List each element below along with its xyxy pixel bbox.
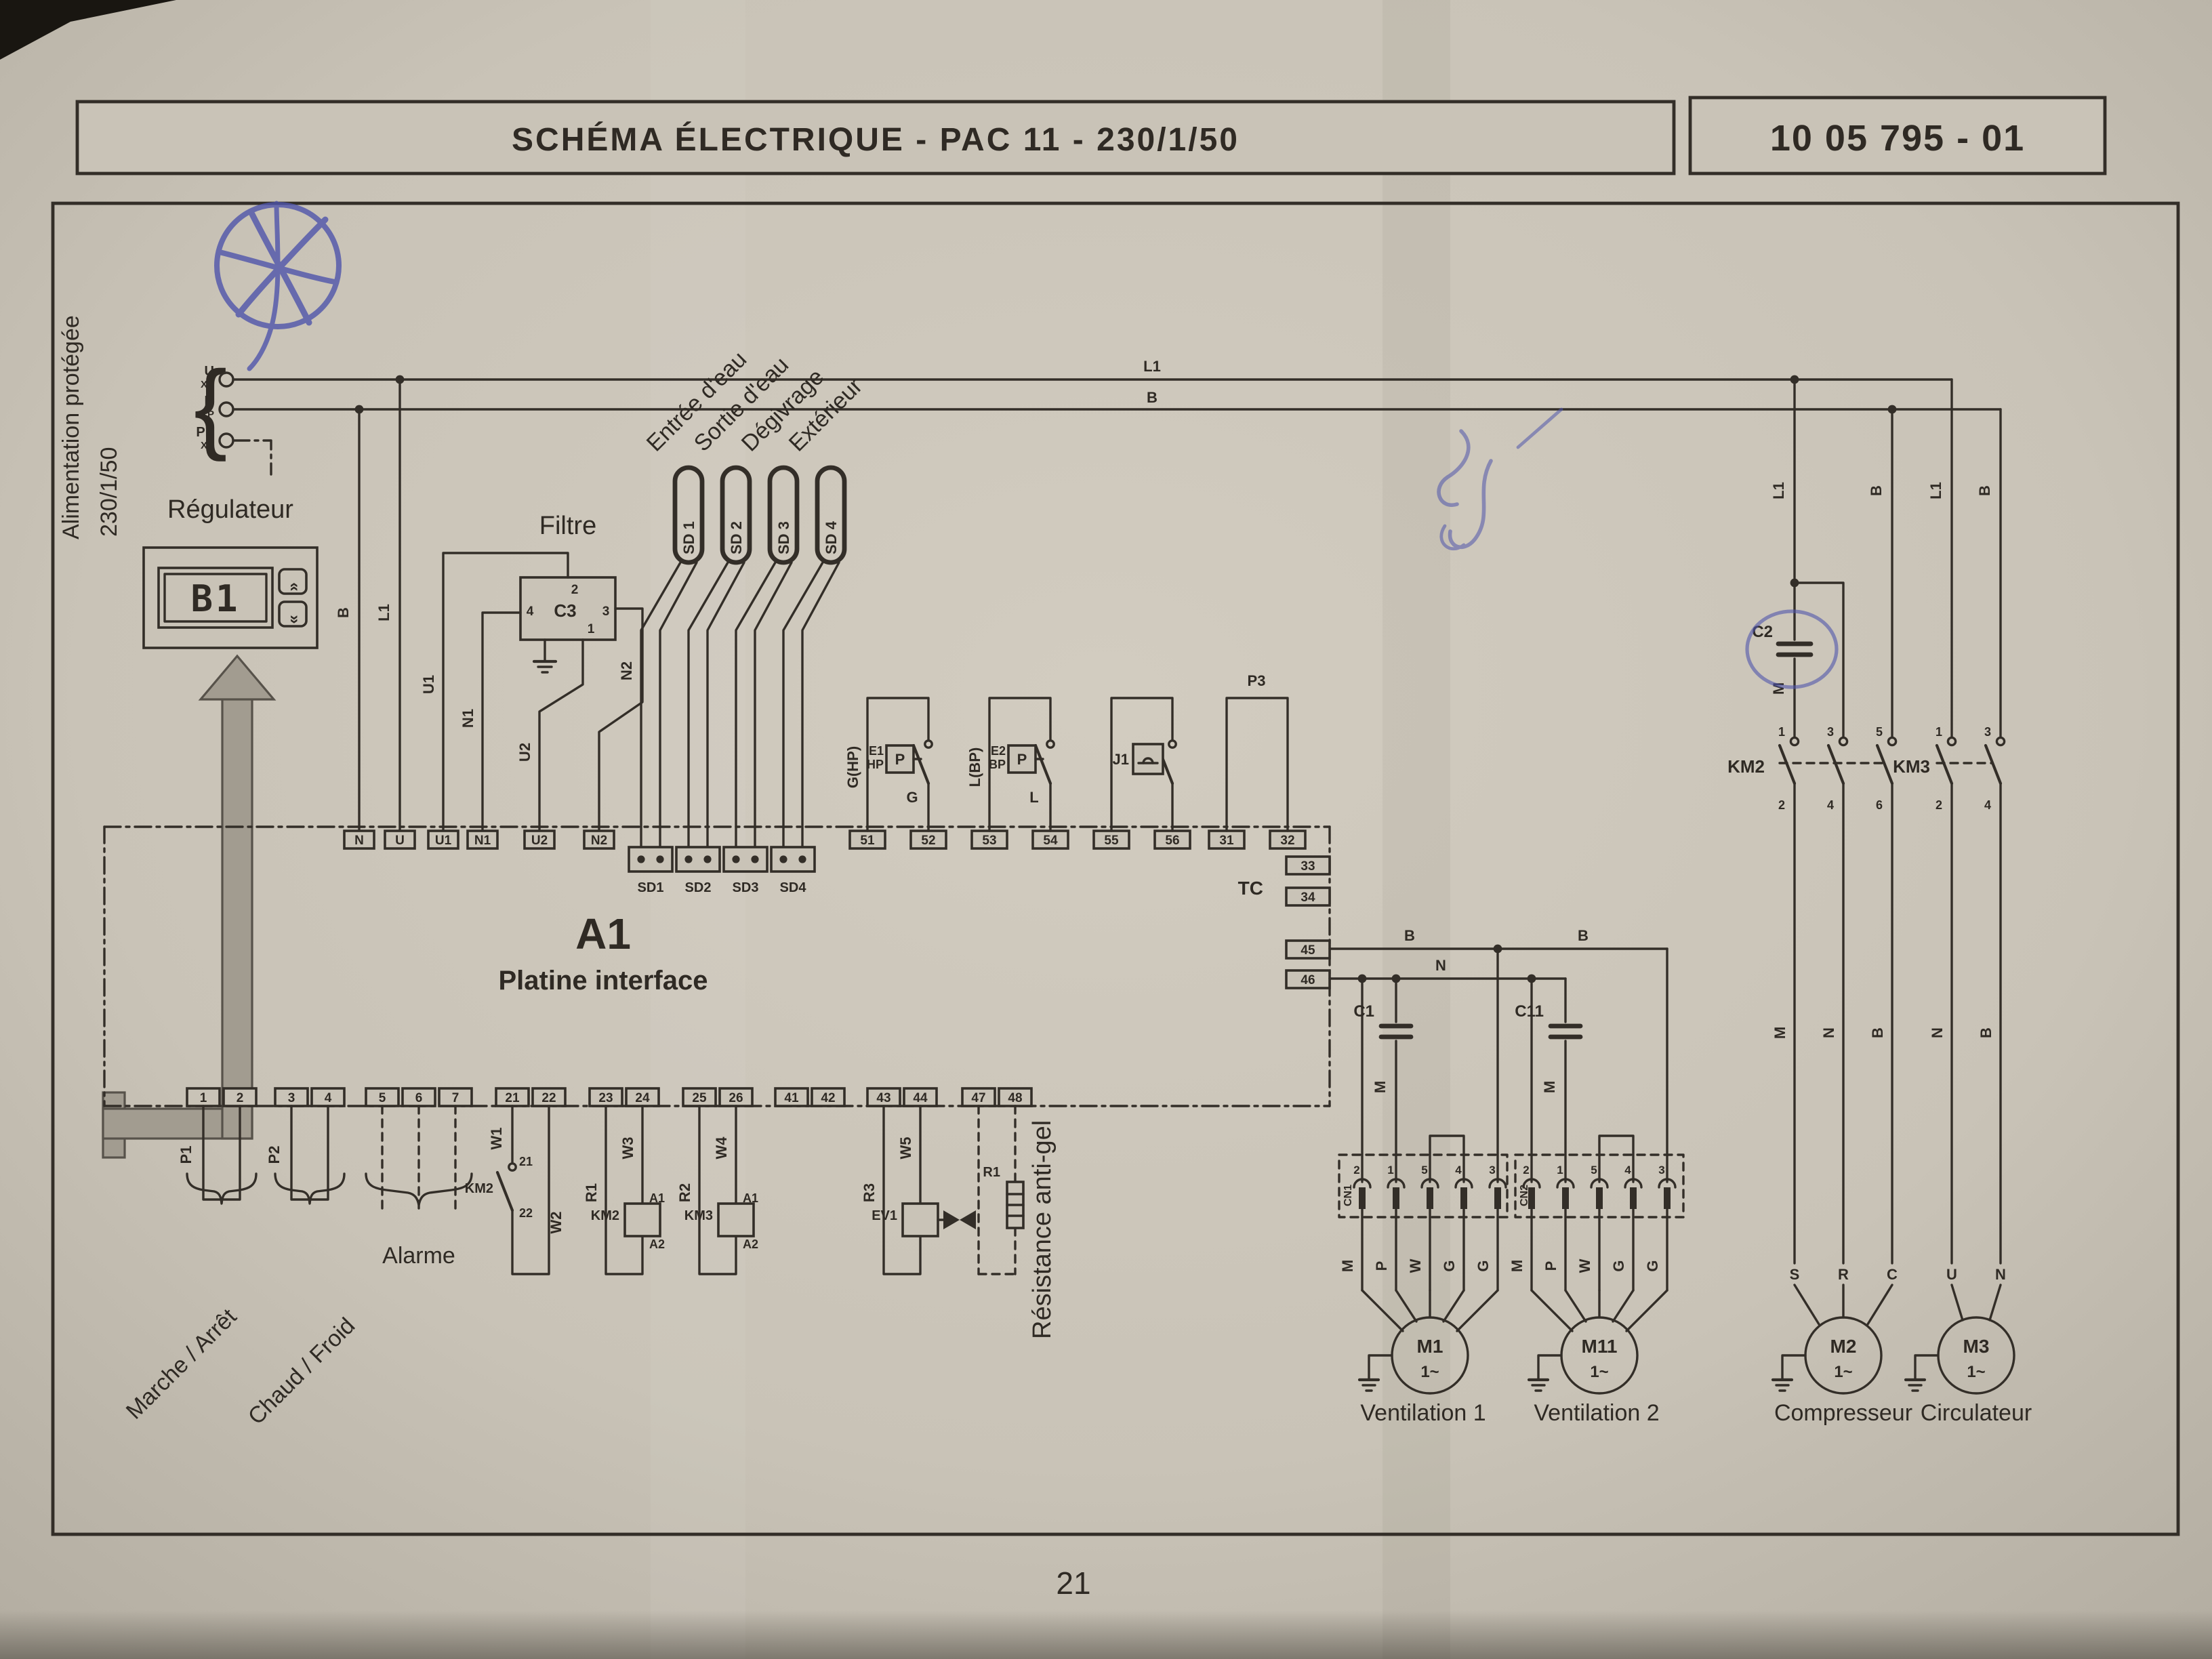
terminal-4: 4 xyxy=(325,1091,332,1105)
motor-m1-phase: 1~ xyxy=(1420,1363,1439,1381)
probe-sd2-tag: SD 2 xyxy=(728,521,745,554)
terminal-5: 5 xyxy=(379,1091,386,1105)
terminal-6: 6 xyxy=(415,1091,423,1105)
compressor-name: Compresseur xyxy=(1774,1400,1912,1426)
probe-sd3-tag: SD 3 xyxy=(775,521,792,554)
terminal-44: 44 xyxy=(913,1091,928,1105)
supply-pe: PE xyxy=(196,425,214,440)
motor-m3-phase: 1~ xyxy=(1967,1363,1985,1381)
fan1-wire-p: P xyxy=(1373,1261,1390,1271)
fan2-wire-g2: G xyxy=(1644,1260,1661,1271)
filter-label: Filtre xyxy=(539,512,596,540)
fan1-pin3: 3 xyxy=(1489,1164,1495,1176)
bp-wire-label: L(BP) xyxy=(966,747,983,787)
terminal-41: 41 xyxy=(784,1091,799,1105)
km2-coil-r1: R1 xyxy=(583,1183,600,1202)
supply-pe-xp: XP xyxy=(201,440,214,451)
terminal-55: 55 xyxy=(1104,834,1119,848)
p1-label: P1 xyxy=(178,1146,194,1164)
m2-term-r: R xyxy=(1838,1266,1849,1283)
regulator-label: Régulateur xyxy=(167,495,293,524)
fan2-pin1: 1 xyxy=(1557,1164,1563,1176)
fan2-wire-w: W xyxy=(1576,1258,1593,1273)
platine-ref: A1 xyxy=(575,909,631,958)
terminal-N2: N2 xyxy=(591,834,607,848)
sd2-connector-label: SD2 xyxy=(685,880,712,895)
doc-ref: 10 05 795 - 01 xyxy=(1770,118,2025,159)
terminal-25: 25 xyxy=(692,1091,707,1105)
hp-p-symbol: P xyxy=(895,751,905,768)
terminal-48: 48 xyxy=(1008,1091,1022,1105)
comp-wire-m: M xyxy=(1771,1027,1788,1039)
terminal-3: 3 xyxy=(288,1091,295,1105)
circulator-name: Circulateur xyxy=(1921,1400,2032,1426)
resistor-icon xyxy=(1007,1182,1023,1228)
circ-drop-l1-label: L1 xyxy=(1927,482,1944,499)
km2-t3: 3 xyxy=(1827,725,1834,739)
doc-ref-box: 10 05 795 - 01 xyxy=(1690,98,2105,173)
fan1-pin4: 4 xyxy=(1455,1164,1462,1176)
fan2-pin3: 3 xyxy=(1658,1164,1664,1176)
motor-m11-phase: 1~ xyxy=(1590,1363,1608,1381)
terminal-47: 47 xyxy=(971,1091,985,1105)
m3-term-u: U xyxy=(1946,1266,1957,1283)
supply-label-line2: 230/1/50 xyxy=(96,447,122,537)
comp-wire-b: B xyxy=(1869,1027,1886,1038)
terminal-46: 46 xyxy=(1300,973,1315,987)
fan1-pin2: 2 xyxy=(1353,1164,1359,1176)
ev1-r3: R3 xyxy=(861,1183,878,1202)
supply-u: U xyxy=(205,364,214,379)
fan1-name: Ventilation 1 xyxy=(1360,1400,1486,1426)
km3-t2: 2 xyxy=(1935,798,1942,812)
terminal-U2: U2 xyxy=(531,834,548,848)
filter-pin2: 2 xyxy=(571,583,579,597)
bus-l1-label: L1 xyxy=(1143,358,1161,375)
hp-out-label: G xyxy=(906,789,918,806)
flow-ref: J1 xyxy=(1113,751,1129,768)
c11-label: C11 xyxy=(1515,1002,1544,1021)
antigel-ref: R1 xyxy=(983,1165,1000,1180)
fan1-wire-m: M xyxy=(1339,1260,1356,1272)
fan1-pin1: 1 xyxy=(1387,1164,1393,1176)
ev1-name: EV1 xyxy=(872,1208,897,1223)
regulator-display: B1 xyxy=(190,577,240,620)
terminal-24: 24 xyxy=(635,1091,650,1105)
km3-coil-a2: A2 xyxy=(743,1237,758,1251)
km2-t5: 5 xyxy=(1876,725,1883,739)
c11-wire-label: M xyxy=(1541,1081,1558,1093)
fan1-wire-w: W xyxy=(1407,1258,1424,1273)
filter-wire-n1: N1 xyxy=(459,709,476,728)
m2-term-s: S xyxy=(1790,1266,1800,1283)
fan1-wire-g2: G xyxy=(1475,1260,1492,1271)
m2-term-c: C xyxy=(1887,1266,1898,1283)
hp-sub: HP xyxy=(867,758,884,771)
terminal-53: 53 xyxy=(982,834,996,848)
supply-n: N xyxy=(205,394,214,409)
filter-wire-n2: N2 xyxy=(618,661,635,680)
regulator: Régulateur B1 » « xyxy=(144,495,317,648)
filter-wire-u2: U2 xyxy=(516,743,533,762)
terminal-N: N xyxy=(354,834,364,848)
hp-ref: E1 xyxy=(869,744,884,758)
terminal-U: U xyxy=(395,834,405,848)
comp-drop-b-label: B xyxy=(1868,485,1885,496)
terminal-43: 43 xyxy=(876,1091,890,1105)
chevron-up-icon: » xyxy=(284,582,302,591)
fan2-wire-g1: G xyxy=(1610,1260,1627,1271)
km3-t4: 4 xyxy=(1984,798,1991,812)
terminal-54: 54 xyxy=(1043,834,1058,848)
c1-label: C1 xyxy=(1353,1002,1374,1021)
motor-m1-ref: M1 xyxy=(1417,1336,1443,1357)
terminal-21: 21 xyxy=(505,1091,520,1105)
bp-out-label: L xyxy=(1029,789,1038,806)
comp-drop-l1-label: L1 xyxy=(1770,482,1787,499)
terminal-N1: N1 xyxy=(474,834,491,848)
km2-coil-w3: W3 xyxy=(619,1137,636,1160)
terminal-33: 33 xyxy=(1300,859,1315,874)
motor-m3-ref: M3 xyxy=(1963,1336,1990,1357)
terminal-56: 56 xyxy=(1165,834,1179,848)
platine-bottom-terminals: 1 2 3 4 5 6 7 21 22 23 24 25 26 41 42 43… xyxy=(187,1088,1031,1106)
km3-label: KM3 xyxy=(1893,756,1930,777)
sd3-connector-label: SD3 xyxy=(733,880,759,895)
title-bar: SCHÉMA ÉLECTRIQUE - PAC 11 - 230/1/50 xyxy=(77,102,1674,173)
terminal-45: 45 xyxy=(1300,943,1315,958)
aux-w2-label: W2 xyxy=(548,1212,565,1234)
terminal-42: 42 xyxy=(821,1091,835,1105)
terminal-1: 1 xyxy=(200,1091,207,1105)
circ-wire-n: N xyxy=(1929,1027,1946,1038)
km2-coil-name: KM2 xyxy=(591,1208,619,1223)
p3-ref: P3 xyxy=(1248,672,1266,689)
terminal-7: 7 xyxy=(452,1091,459,1105)
supply-n-xp: XP xyxy=(201,409,214,420)
probe-sd1-tag: SD 1 xyxy=(680,521,697,554)
fan2-name: Ventilation 2 xyxy=(1534,1400,1659,1426)
page-title: SCHÉMA ÉLECTRIQUE - PAC 11 - 230/1/50 xyxy=(512,121,1240,158)
fan2-pin4: 4 xyxy=(1624,1164,1631,1176)
fan1-connector-label: CN1 xyxy=(1343,1185,1354,1206)
fan2-pin2: 2 xyxy=(1523,1164,1529,1176)
motor-m2-phase: 1~ xyxy=(1834,1363,1852,1381)
antigel-label: Résistance anti-gel xyxy=(1028,1120,1057,1339)
terminal-2: 2 xyxy=(237,1091,244,1105)
filter-ref: C3 xyxy=(554,600,576,621)
regulator-drop-l1-label: L1 xyxy=(375,604,392,621)
km3-coil-a1: A1 xyxy=(743,1191,758,1205)
supply-u-xp: XP xyxy=(201,379,214,390)
fan-wire-b1-label: B xyxy=(1404,927,1415,944)
motor-m2-ref: M2 xyxy=(1830,1336,1857,1357)
terminal-51: 51 xyxy=(860,834,875,848)
sd4-connector-label: SD4 xyxy=(780,880,807,895)
km2-t2: 2 xyxy=(1778,798,1785,812)
bp-ref: E2 xyxy=(991,744,1006,758)
km3-coil-w4: W4 xyxy=(713,1136,730,1160)
motor-m11-ref: M11 xyxy=(1582,1336,1618,1357)
fan2-pin5: 5 xyxy=(1591,1164,1597,1176)
km3-coil-name: KM3 xyxy=(684,1208,713,1223)
page-number: 21 xyxy=(1056,1565,1090,1601)
filter-pin3: 3 xyxy=(602,605,610,619)
terminal-34: 34 xyxy=(1300,890,1315,905)
terminal-31: 31 xyxy=(1219,834,1234,848)
bus-b-label: B xyxy=(1147,389,1158,406)
bp-sub: BP xyxy=(989,758,1006,771)
circ-drop-b-label: B xyxy=(1976,485,1993,496)
supply-label-line1: Alimentation protégée xyxy=(58,315,84,539)
km2-t4: 4 xyxy=(1827,798,1834,812)
platine-name: Platine interface xyxy=(498,966,708,996)
fan2-wire-p: P xyxy=(1542,1261,1559,1271)
c1-wire-label: M xyxy=(1372,1081,1389,1093)
km2-coil-a2: A2 xyxy=(649,1237,665,1251)
chevron-down-icon: « xyxy=(284,615,302,623)
km3-t3: 3 xyxy=(1984,725,1991,739)
km2-coil-a1: A1 xyxy=(649,1191,665,1205)
terminal-32: 32 xyxy=(1280,834,1294,848)
fan2-wire-m: M xyxy=(1509,1260,1525,1272)
circ-wire-b: B xyxy=(1978,1027,1994,1038)
fan-wire-b2-label: B xyxy=(1578,927,1589,944)
probe-sd4-tag: SD 4 xyxy=(823,520,840,554)
aux-t22: 22 xyxy=(519,1206,533,1220)
scanned-schematic-photo: SCHÉMA ÉLECTRIQUE - PAC 11 - 230/1/50 10… xyxy=(0,0,2212,1659)
filter-pin4: 4 xyxy=(527,605,534,619)
km3-t1: 1 xyxy=(1935,725,1942,739)
fan-wire-n-label: N xyxy=(1435,957,1446,974)
regulator-drop-b-label: B xyxy=(335,607,352,618)
p2-label: P2 xyxy=(266,1146,283,1164)
km2-label: KM2 xyxy=(1727,756,1765,777)
tc-label: TC xyxy=(1238,878,1263,899)
aux-t21: 21 xyxy=(519,1155,533,1168)
terminal-26: 26 xyxy=(729,1091,743,1105)
bp-p-symbol: P xyxy=(1017,751,1027,768)
terminal-52: 52 xyxy=(921,834,935,848)
terminal-23: 23 xyxy=(598,1091,613,1105)
filter-pin1: 1 xyxy=(588,622,595,636)
fan1-pin5: 5 xyxy=(1421,1164,1427,1176)
km2-t1: 1 xyxy=(1778,725,1785,739)
ev1-w5: W5 xyxy=(897,1137,914,1160)
sd1-connector-label: SD1 xyxy=(638,880,664,895)
comp-wire-n: N xyxy=(1820,1027,1837,1038)
terminal-U1: U1 xyxy=(435,834,452,848)
alarme-label: Alarme xyxy=(382,1243,455,1269)
terminal-22: 22 xyxy=(541,1091,556,1105)
aux-w1-label: W1 xyxy=(488,1128,505,1150)
km3-coil-r2: R2 xyxy=(676,1183,693,1202)
fan1-wire-g1: G xyxy=(1441,1260,1458,1271)
km2-t6: 6 xyxy=(1876,798,1883,812)
m3-term-n: N xyxy=(1995,1266,2006,1283)
hp-wire-label: G(HP) xyxy=(844,746,861,788)
aux-km2-label: KM2 xyxy=(465,1181,493,1196)
filter-wire-u1: U1 xyxy=(420,675,437,694)
